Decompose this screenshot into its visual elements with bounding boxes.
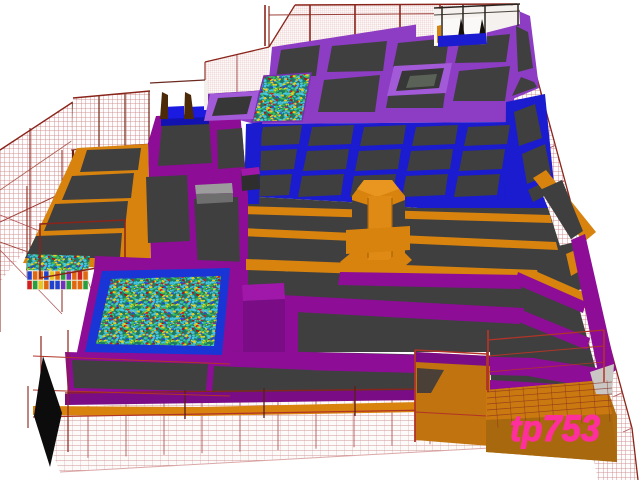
svg-text:tp753: tp753: [510, 408, 600, 449]
